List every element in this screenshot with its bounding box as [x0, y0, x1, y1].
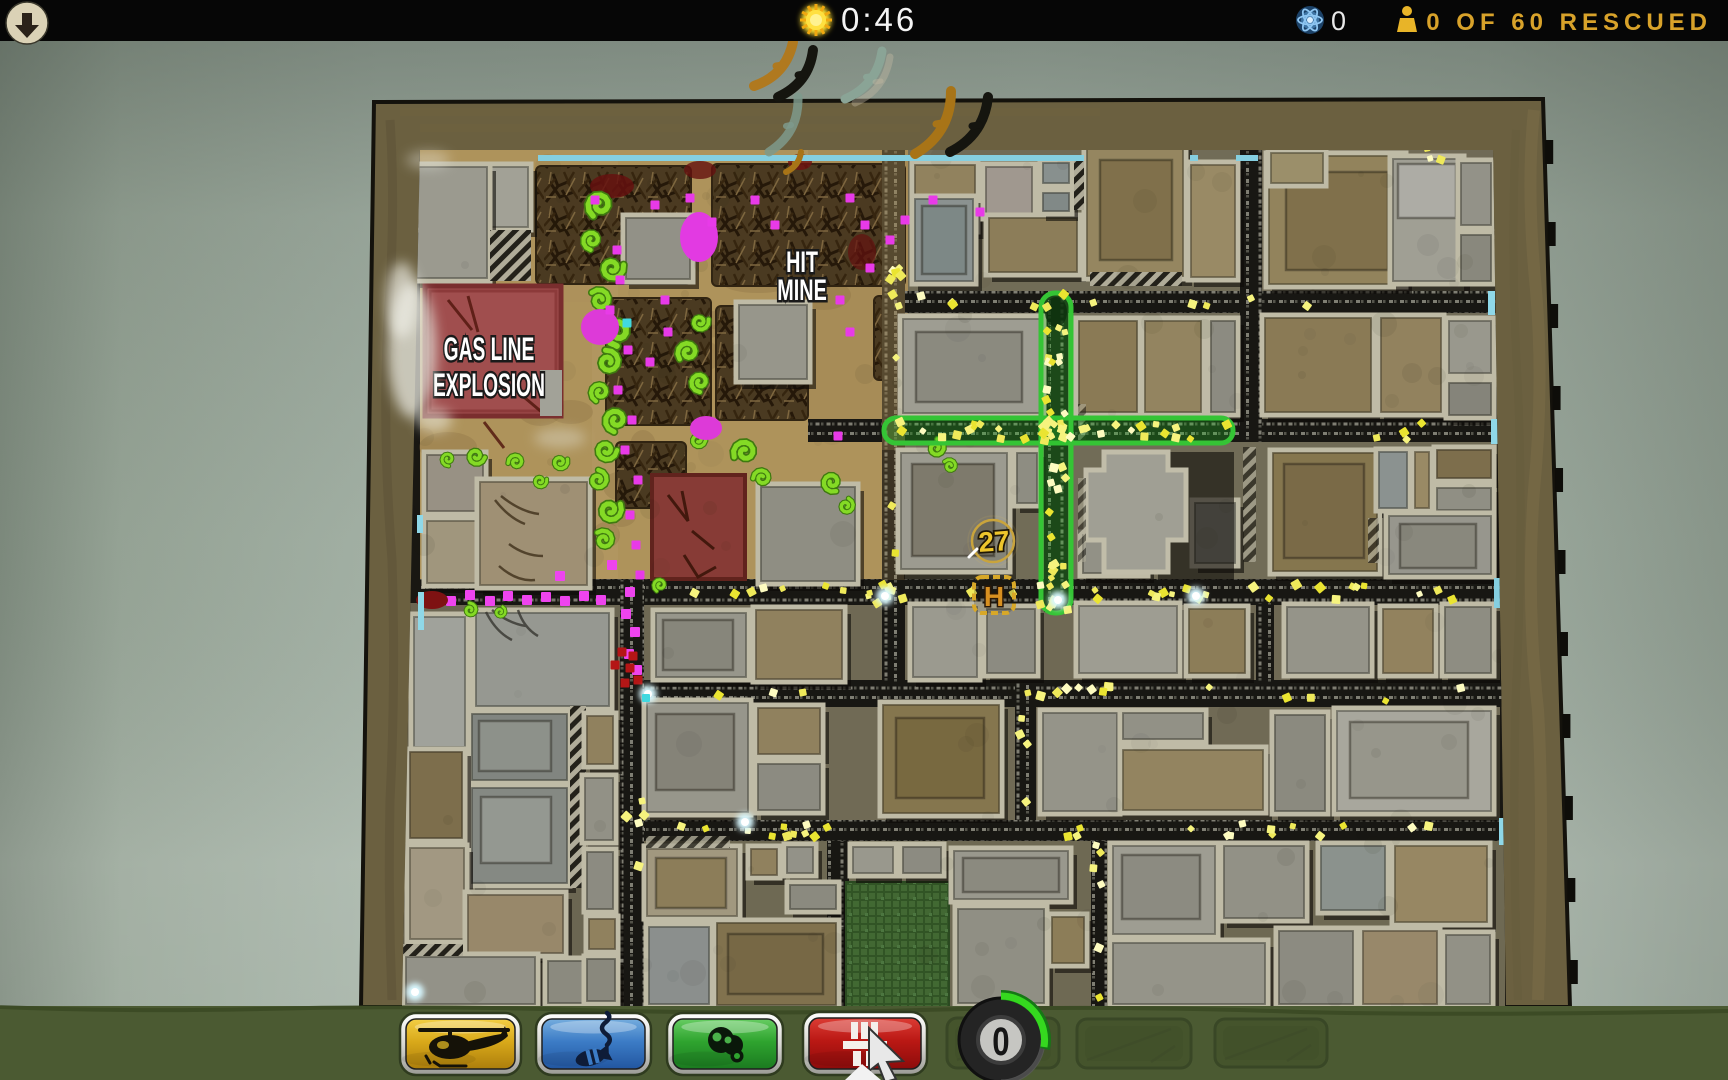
svg-text:0: 0: [992, 1019, 1009, 1064]
svg-text:MINE: MINE: [777, 274, 826, 307]
svg-text:H: H: [984, 581, 1004, 612]
svg-text:GAS LINE: GAS LINE: [444, 331, 535, 367]
svg-text:EXPLOSION: EXPLOSION: [433, 367, 545, 403]
svg-text:0: 0: [1331, 6, 1346, 36]
svg-text:27: 27: [977, 525, 1010, 558]
svg-text:0 OF 60 RESCUED: 0 OF 60 RESCUED: [1426, 9, 1712, 36]
svg-text:0:46: 0:46: [841, 1, 917, 38]
